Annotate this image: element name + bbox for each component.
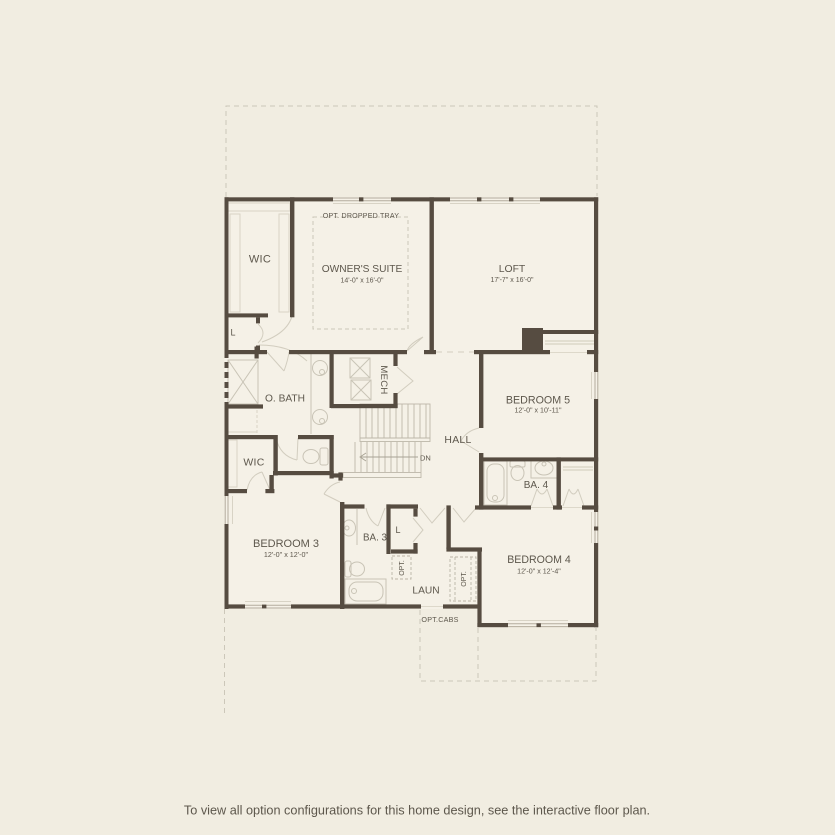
svg-text:WIC: WIC <box>243 457 264 469</box>
svg-text:L: L <box>230 328 235 338</box>
svg-text:MECH: MECH <box>378 365 389 394</box>
svg-text:12'-0" x 10'-11": 12'-0" x 10'-11" <box>514 407 562 415</box>
svg-text:OPT.: OPT. <box>399 560 406 576</box>
svg-text:14'-0" x 16'-0": 14'-0" x 16'-0" <box>340 278 384 285</box>
svg-text:12'-0" x 12'-4": 12'-0" x 12'-4" <box>517 568 561 576</box>
svg-text:17'-7" x 16'-0": 17'-7" x 16'-0" <box>490 277 534 284</box>
svg-text:L: L <box>395 525 400 535</box>
svg-text:OPT. DROPPED TRAY: OPT. DROPPED TRAY <box>323 212 400 220</box>
svg-text:HALL: HALL <box>444 435 471 446</box>
svg-text:WIC: WIC <box>249 254 271 266</box>
svg-text:BA. 4: BA. 4 <box>524 480 549 491</box>
svg-text:DN: DN <box>420 454 431 463</box>
svg-text:BEDROOM 4: BEDROOM 4 <box>507 554 571 566</box>
svg-text:LAUN: LAUN <box>412 586 439 597</box>
svg-text:12'-0" x 12'-0": 12'-0" x 12'-0" <box>264 550 309 559</box>
svg-text:BEDROOM 3: BEDROOM 3 <box>253 538 319 550</box>
svg-text:OPT.: OPT. <box>461 571 468 587</box>
svg-text:To view all option configurati: To view all option configurations for th… <box>184 804 650 818</box>
svg-text:OPT.CABS: OPT.CABS <box>421 615 458 624</box>
svg-text:BEDROOM 5: BEDROOM 5 <box>506 395 570 407</box>
svg-text:BA. 3: BA. 3 <box>363 533 388 544</box>
svg-text:LOFT: LOFT <box>499 264 526 275</box>
svg-text:OWNER'S SUITE: OWNER'S SUITE <box>322 264 403 275</box>
svg-text:O. BATH: O. BATH <box>265 394 305 405</box>
